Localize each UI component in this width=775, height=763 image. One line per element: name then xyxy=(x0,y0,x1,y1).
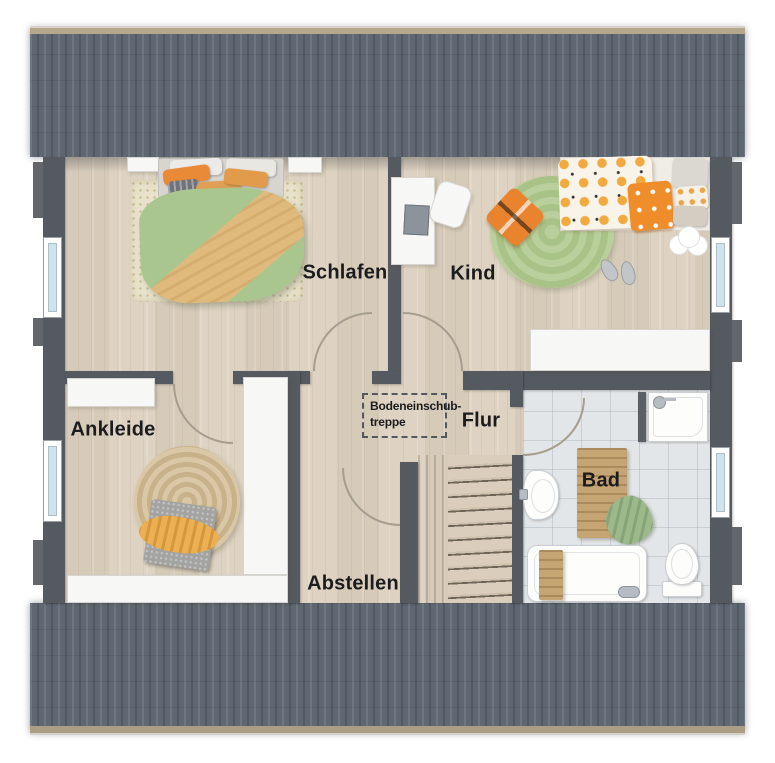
basin-faucet xyxy=(519,489,528,500)
wardrobe-top xyxy=(67,378,155,407)
stair-treads xyxy=(448,455,512,603)
attic-hatch-line1: Bodeneinschub- xyxy=(370,399,443,415)
attic-hatch-line2: treppe xyxy=(370,415,443,431)
desk-monitor xyxy=(403,204,430,235)
wall-ankleide-abstellen xyxy=(288,371,300,603)
staircase xyxy=(418,455,512,603)
window-glass xyxy=(48,243,57,312)
basin-bowl xyxy=(531,479,555,513)
wardrobe-bottom xyxy=(67,575,288,603)
toilet-seat xyxy=(671,549,693,579)
cloud-stool xyxy=(669,226,709,260)
kids-pillow-beige xyxy=(673,205,708,226)
shower-arm xyxy=(664,398,676,401)
bed-duvet xyxy=(138,185,306,305)
window-right-kid xyxy=(711,237,730,313)
dressing-bench xyxy=(143,499,217,572)
wall-pier-right-top xyxy=(732,162,742,224)
wall-mid-right-bath xyxy=(463,371,710,390)
room-label-kind: Kind xyxy=(450,263,495,286)
room-label-flur: Flur xyxy=(462,410,501,433)
wall-stairwell-left xyxy=(400,462,418,603)
room-label-schlafen: Schlafen xyxy=(303,262,388,285)
wardrobe-tall xyxy=(243,377,288,575)
wall-pier-left-bottom xyxy=(33,540,43,585)
bathtub-caddy xyxy=(539,550,563,600)
roof-top xyxy=(30,28,745,157)
stair-stringer xyxy=(418,455,448,603)
nightstand-right xyxy=(288,157,322,173)
floorplan-canvas: Bodeneinschub- treppe Schlafen Kind Ankl… xyxy=(0,0,775,763)
exterior-wall-right xyxy=(710,157,732,603)
window-glass xyxy=(48,446,57,516)
kids-wardrobe xyxy=(530,329,710,371)
washbasin xyxy=(523,470,559,520)
attic-hatch-annotation: Bodeneinschub- treppe xyxy=(362,393,447,438)
nightstand-left xyxy=(127,157,159,172)
roof-bottom xyxy=(30,603,745,733)
wall-pier-left-middle xyxy=(33,318,43,346)
wall-pier-right-middle xyxy=(732,320,742,362)
cloud-lobe xyxy=(678,226,700,248)
room-label-abstellen: Abstellen xyxy=(307,573,399,596)
kids-blanket-orange-fold xyxy=(627,180,675,232)
window-right-bath xyxy=(711,447,730,518)
window-left-bedroom xyxy=(43,237,62,318)
exterior-wall-left xyxy=(43,157,65,603)
roof-bottom-eave-board xyxy=(30,726,745,733)
window-glass xyxy=(716,453,725,512)
wall-pier-right-bottom xyxy=(732,527,742,585)
kids-pillow-gray xyxy=(671,157,709,189)
window-left-dressing xyxy=(43,440,62,522)
duvet-orange-band xyxy=(138,185,306,305)
shower-glass-partition xyxy=(638,392,646,442)
room-label-ankleide: Ankleide xyxy=(71,419,156,442)
bathtub-faucet xyxy=(618,586,640,598)
wall-bath-left-upper xyxy=(510,371,523,407)
toilet-bowl xyxy=(665,543,699,585)
room-label-bad: Bad xyxy=(582,470,620,493)
wall-mid-center-stub xyxy=(372,371,401,384)
roof-top-ridge-board xyxy=(30,28,745,34)
window-glass xyxy=(716,243,725,307)
wall-pier-left-top xyxy=(33,162,43,218)
